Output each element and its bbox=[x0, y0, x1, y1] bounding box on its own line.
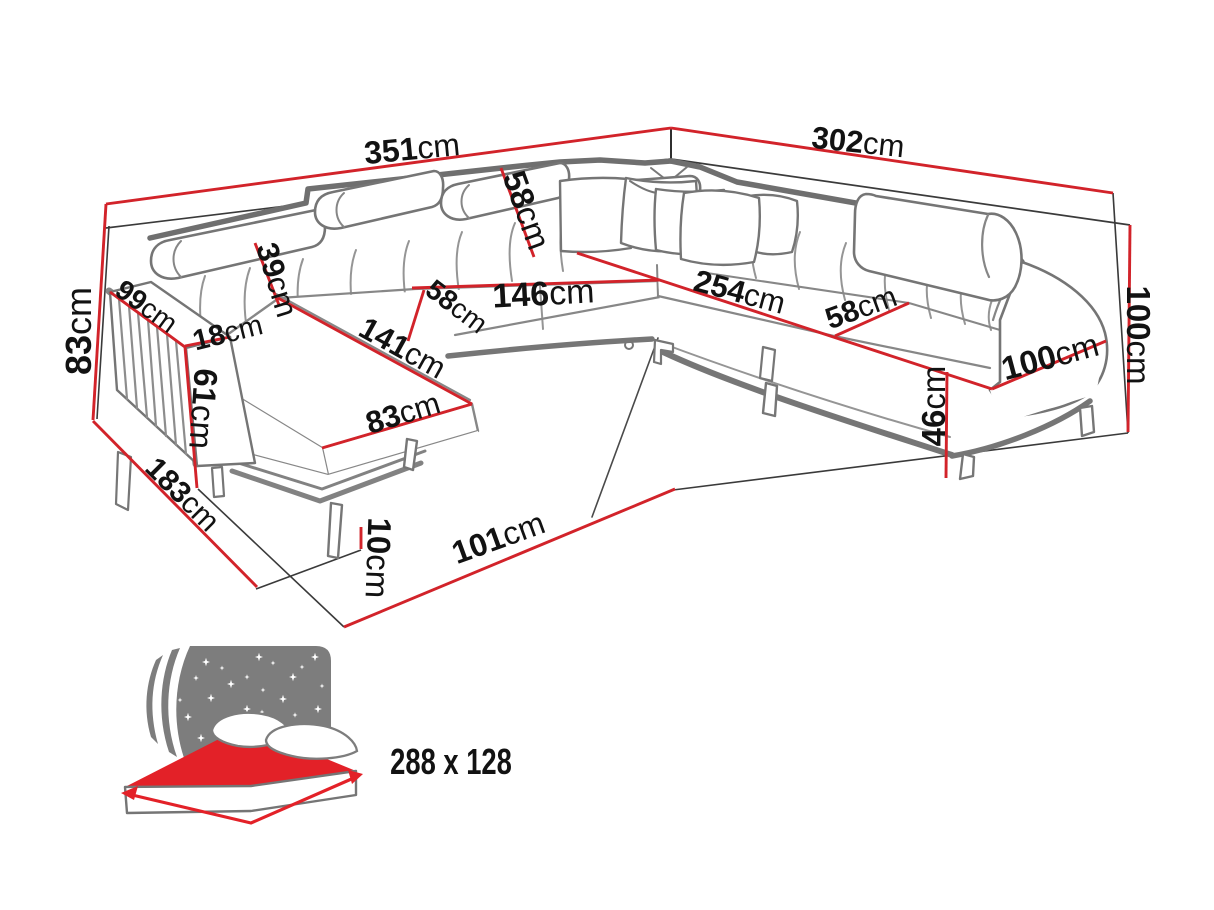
svg-text:10cm: 10cm bbox=[359, 517, 399, 599]
svg-text:83cm: 83cm bbox=[58, 287, 99, 375]
svg-text:288 x 128: 288 x 128 bbox=[390, 741, 512, 782]
svg-text:146cm: 146cm bbox=[491, 272, 595, 315]
svg-text:100cm: 100cm bbox=[1120, 285, 1157, 384]
svg-text:61cm: 61cm bbox=[182, 367, 225, 450]
svg-text:46cm: 46cm bbox=[915, 366, 952, 447]
